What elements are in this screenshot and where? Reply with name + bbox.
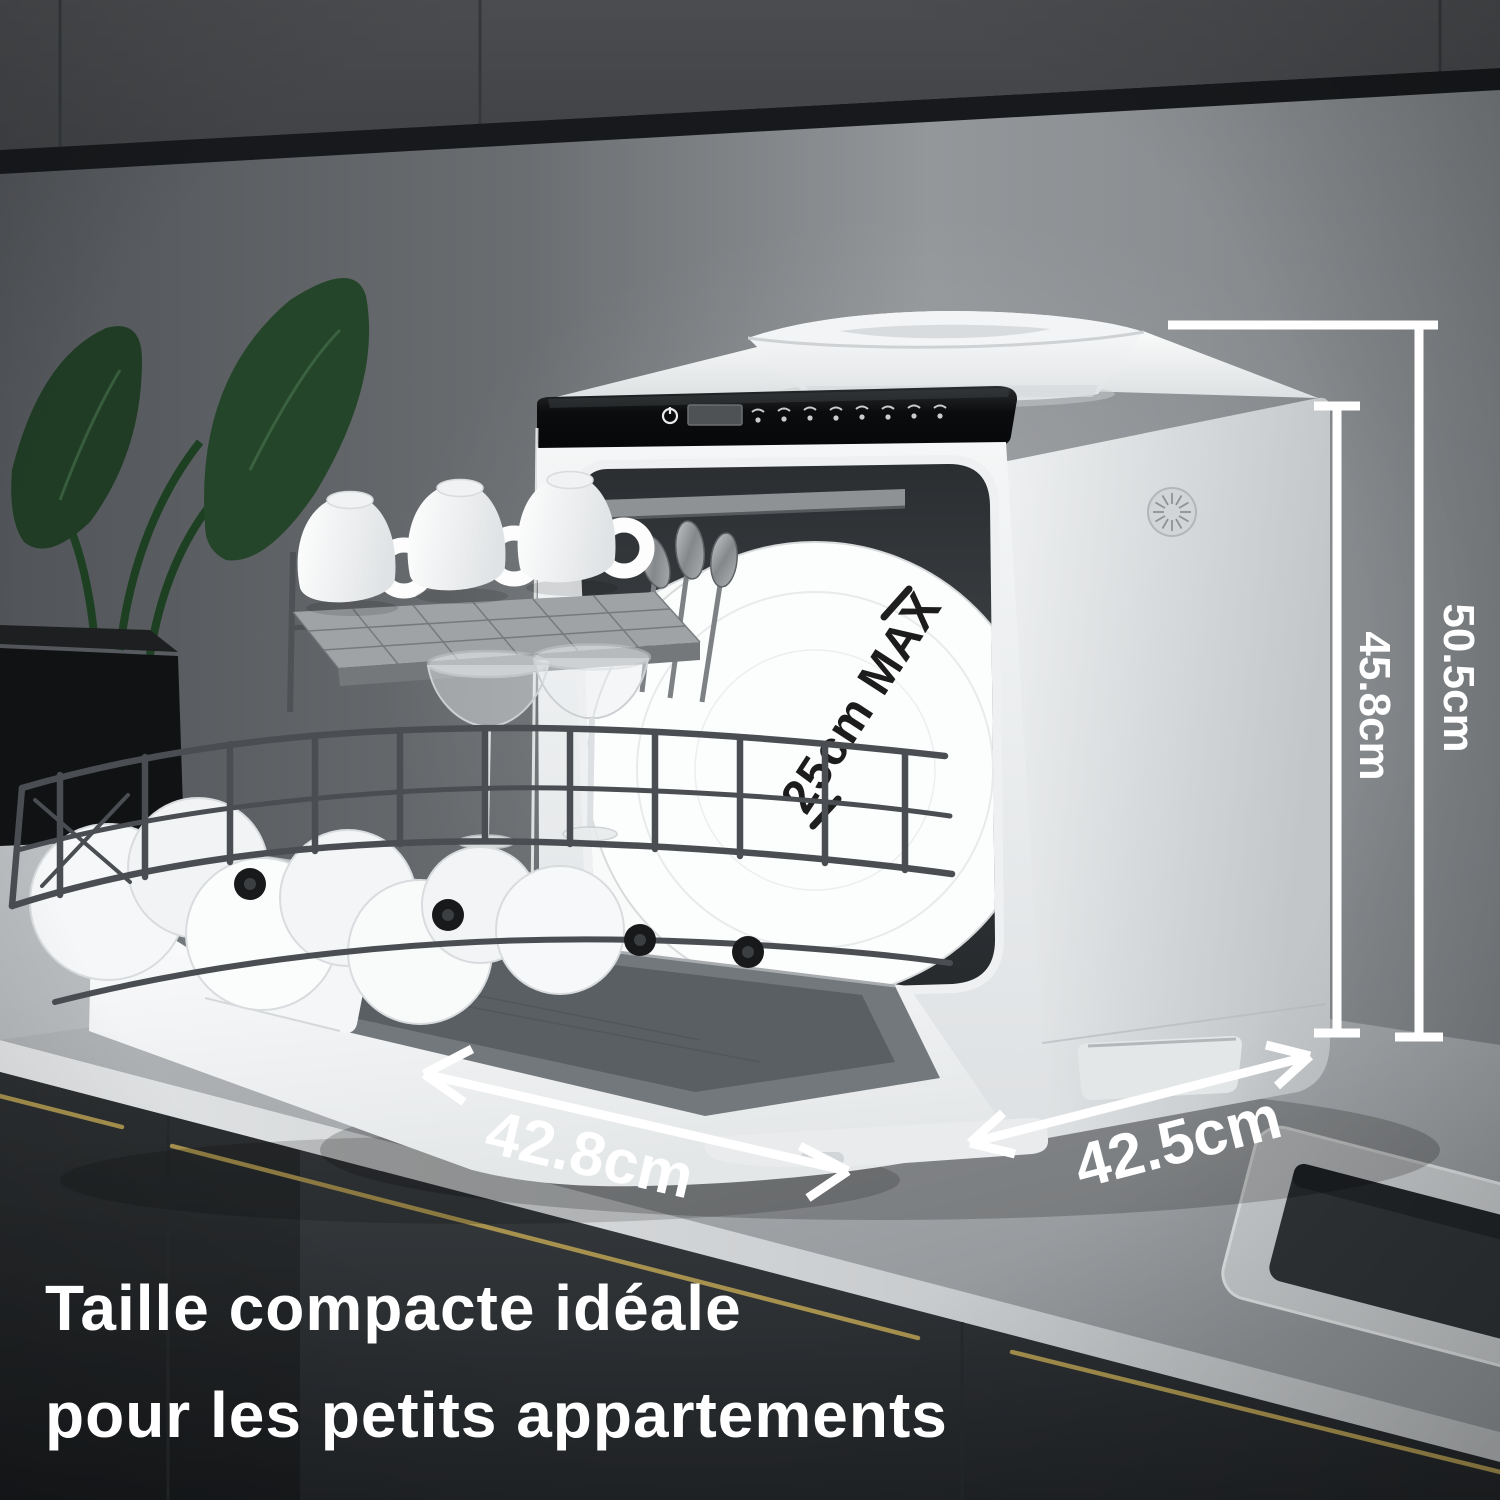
dim-height-total-label: 50.5cm	[1434, 603, 1483, 752]
product-screenshot: 25cm MAX	[0, 0, 1500, 1500]
caption-line-2: pour les petits appartements	[45, 1379, 948, 1451]
caption-line-1: Taille compacte idéale	[45, 1272, 742, 1344]
dim-height-body-label: 45.8cm	[1350, 631, 1399, 780]
kitchen-scene: 25cm MAX	[0, 0, 1500, 1500]
